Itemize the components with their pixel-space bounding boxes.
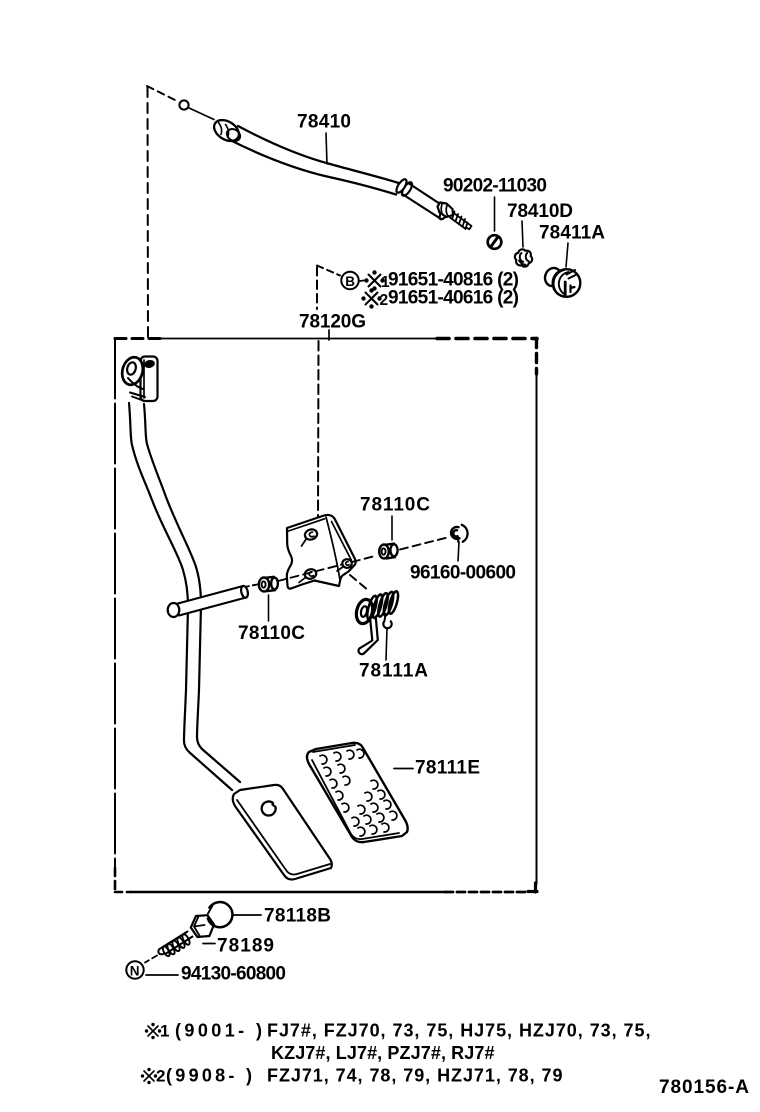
svg-text:78411A: 78411A — [539, 223, 605, 244]
svg-text:78111A: 78111A — [359, 661, 428, 682]
svg-text:78111E: 78111E — [415, 758, 480, 779]
svg-text:1: 1 — [160, 1022, 169, 1041]
svg-text:78110C: 78110C — [360, 495, 430, 516]
svg-text:78120G: 78120G — [299, 312, 366, 333]
svg-text:KZJ7#, LJ7#, PZJ7#, RJ7#: KZJ7#, LJ7#, PZJ7#, RJ7# — [271, 1043, 495, 1063]
svg-text:90202-11030: 90202-11030 — [443, 176, 547, 197]
svg-text:FJ7#, FZJ70, 73, 75, HJ75, HZJ: FJ7#, FZJ70, 73, 75, HJ75, HZJ70, 73, 75… — [267, 1021, 651, 1041]
svg-text:(9908- ): (9908- ) — [166, 1066, 252, 1086]
svg-text:780156-A: 780156-A — [659, 1077, 749, 1098]
svg-text:2: 2 — [156, 1067, 165, 1086]
svg-text:(9001- ): (9001- ) — [175, 1021, 262, 1041]
svg-text:FZJ71, 74, 78, 79, HZJ71, 78,: FZJ71, 74, 78, 79, HZJ71, 78, 79 — [267, 1066, 563, 1086]
svg-text:78118B: 78118B — [264, 906, 331, 927]
svg-text:2: 2 — [380, 292, 389, 309]
svg-text:N: N — [130, 964, 140, 979]
svg-text:78189: 78189 — [217, 936, 274, 957]
svg-text:91651-40616 (2): 91651-40616 (2) — [388, 288, 519, 309]
svg-text:96160-00600: 96160-00600 — [410, 563, 516, 584]
svg-text:78110C: 78110C — [238, 623, 305, 644]
svg-text:78410: 78410 — [297, 112, 351, 133]
svg-text:94130-60800: 94130-60800 — [181, 964, 286, 985]
svg-text:B: B — [345, 274, 355, 289]
svg-text:78410D: 78410D — [507, 201, 573, 222]
